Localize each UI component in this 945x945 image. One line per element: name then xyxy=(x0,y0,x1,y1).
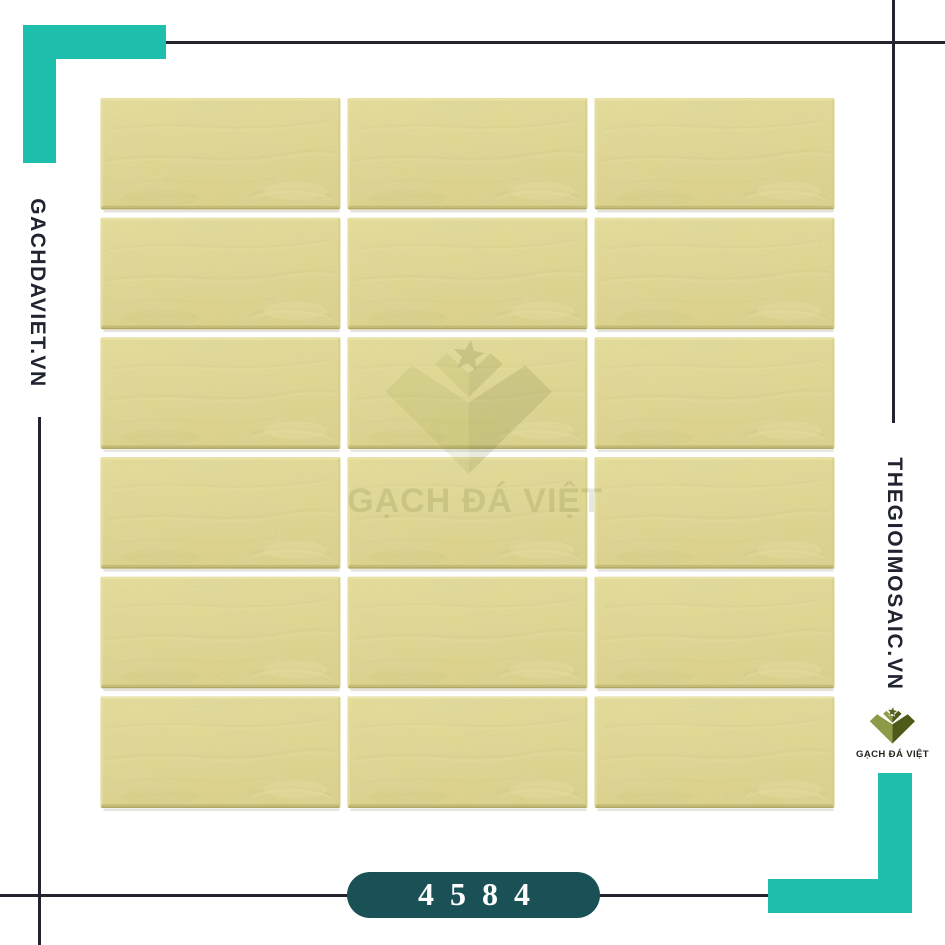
svg-text:GẠCH ĐÁ VIỆT: GẠCH ĐÁ VIỆT xyxy=(347,482,603,520)
svg-text:GẠCH ĐÁ VIỆT: GẠCH ĐÁ VIỆT xyxy=(856,748,929,760)
